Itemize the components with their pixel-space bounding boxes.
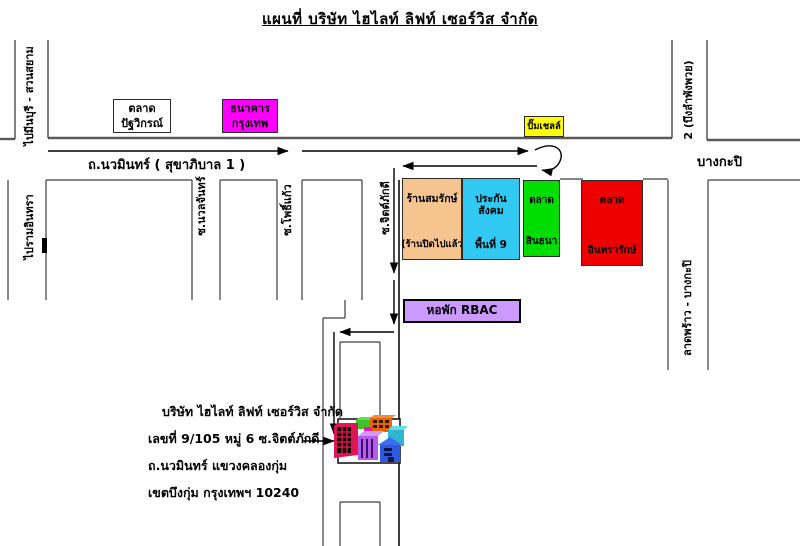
u-turn-arrow-icon <box>535 146 561 171</box>
soi-nuan-chan-label: ซ.นวลจันทร์ <box>194 175 210 237</box>
rbac-dorm-box: หอพัก RBAC <box>403 299 521 323</box>
company-address: บริษัท ไฮไลท์ ลิฟท์ เซอร์วิส จำกัด เลขที… <box>148 398 338 506</box>
social-security-line1: ประกันสังคม <box>463 193 519 217</box>
road-mark <box>42 238 47 253</box>
soi-chit-phakdi-label: ซ.จิตต์ภักดี <box>378 179 394 237</box>
main-road-label: ถ.นวมินทร์ ( สุขาภิบาล 1 ) <box>88 154 245 175</box>
social-security-box: ประกันสังคม พื้นที่ 9 <box>462 178 520 260</box>
company-address-line2: เลขที่ 9/105 หมู่ 6 ซ.จิตต์ภักดี <box>148 425 338 452</box>
somrak-shop-box: ร้านสมรักษ์ (ร้านปิดไปแล้ว <box>402 178 462 260</box>
to-minburi-label: ไปมีนบุรี - สวนสยาม <box>22 44 38 148</box>
lat-phrao-bang-kapi-label: ลาดพร้าว - บางกะปิ <box>680 253 696 363</box>
bangkok-bank-box: ธนาคาร กรุงเทพ <box>222 99 278 133</box>
soi-pho-kaeo-label: ซ.โพธิ์แก้ว <box>280 182 296 238</box>
shell-station-label: ปั๊มเชลล์ <box>527 119 561 134</box>
page-title: แผนที่ บริษัท ไฮไลท์ ลิฟท์ เซอร์วิส จำกั… <box>10 7 790 31</box>
shell-station-box: ปั๊มเชลล์ <box>524 116 564 137</box>
sinthana-market-box: ตลาด สินธนา <box>523 180 560 257</box>
company-address-line4: เขตบึงกุ่ม กรุงเทพฯ 10240 <box>148 479 338 506</box>
patwikorn-market-line1: ตลาด <box>128 101 155 116</box>
sinthana-market-line2: สินธนา <box>526 236 558 248</box>
company-buildings-illustration <box>332 414 408 466</box>
somrak-shop-line2: (ร้านปิดไปแล้ว <box>401 239 463 251</box>
bang-kapi-label: บางกะปิ <box>697 151 742 172</box>
bangkok-bank-line2: กรุงเทพ <box>232 116 268 131</box>
main-road-edges <box>0 138 800 140</box>
somrak-shop-line1: ร้านสมรักษ์ <box>407 193 458 205</box>
bangkok-bank-line1: ธนาคาร <box>230 101 270 116</box>
sinthana-market-line1: ตลาด <box>529 195 554 207</box>
inthararak-market-line2: อินทรารักษ์ <box>588 245 636 257</box>
to-ram-inthra-label: ไปรามอินทรา <box>22 189 38 265</box>
patwikorn-market-line2: ปัฐวิกรณ์ <box>121 116 163 131</box>
map-canvas: แผนที่ บริษัท ไฮไลท์ ลิฟท์ เซอร์วิส จำกั… <box>0 0 800 546</box>
inthararak-market-line1: ตลาด <box>600 195 625 207</box>
inthararak-market-box: ตลาด อินทรารักษ์ <box>581 180 643 266</box>
rbac-dorm-label: หอพัก RBAC <box>427 303 498 317</box>
bueng-lam-phang-phuai-label: 2 (บึงลำพังพวย) <box>681 44 697 156</box>
patwikorn-market-box: ตลาด ปัฐวิกรณ์ <box>113 99 171 133</box>
company-address-line3: ถ.นวมินทร์ แขวงคลองกุ่ม <box>148 452 338 479</box>
social-security-line2: พื้นที่ 9 <box>475 239 507 251</box>
company-name: บริษัท ไฮไลท์ ลิฟท์ เซอร์วิส จำกัด <box>148 398 338 425</box>
